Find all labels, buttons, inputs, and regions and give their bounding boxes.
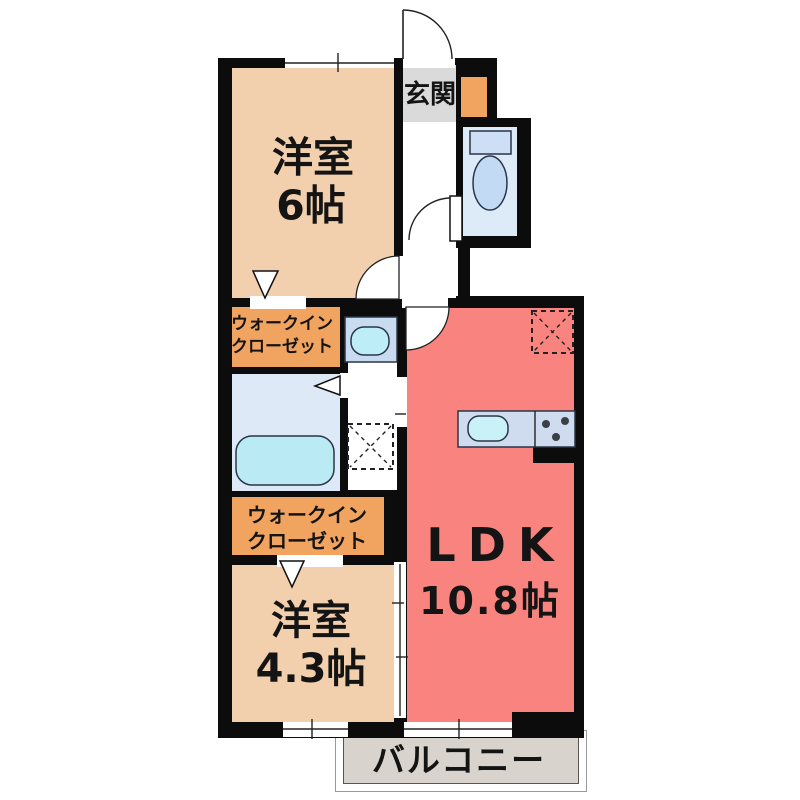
wic-lower-label: ウォークイン クローゼット (247, 502, 367, 554)
toilet-door-arc (409, 198, 451, 240)
washbasin-icon (351, 327, 389, 355)
wic-upper-line2: クローゼット (231, 336, 333, 359)
entrance-label: 玄関 (404, 82, 456, 108)
ldk-label: LDK (426, 522, 565, 568)
entrance-door-arc (403, 10, 452, 59)
wic-upper-label: ウォークイン クローゼット (231, 313, 333, 359)
toilet-door-panel (450, 196, 462, 241)
bedroom6-size: 6帖 (276, 186, 346, 227)
toilet-bowl-icon (473, 156, 507, 210)
toilet-tank-icon (470, 131, 511, 154)
ldk-size: 10.8帖 (419, 582, 561, 620)
wic-upper-line1: ウォークイン (231, 313, 333, 336)
bedroom43-label: 洋室 (271, 601, 351, 641)
bedroom6-door-arc (356, 256, 399, 299)
bedroom43-size: 4.3帖 (256, 649, 367, 689)
bedroom6-label: 洋室 (272, 138, 354, 179)
wic-upper-door-icon (253, 271, 278, 298)
stove-burner-3 (552, 433, 560, 441)
balcony-label: バルコニー (372, 744, 546, 777)
floor-plan: 洋室 6帖 玄関 ウォークイン クローゼット ウォークイン クローゼット 洋室 … (0, 0, 800, 800)
ldk-door-arc (406, 307, 449, 350)
stove-burner-2 (561, 417, 569, 425)
bathtub-icon (236, 436, 334, 485)
bath-folding-door-icon (315, 376, 340, 395)
fixtures-overlay (0, 0, 800, 800)
wic-lower-line1: ウォークイン (247, 502, 367, 528)
stove-burner-1 (542, 420, 550, 428)
fridge-space-x2 (534, 313, 571, 351)
wic-lower-door-icon (280, 561, 304, 587)
wic-lower-line2: クローゼット (247, 528, 367, 554)
kitchen-sink-icon (468, 416, 508, 441)
